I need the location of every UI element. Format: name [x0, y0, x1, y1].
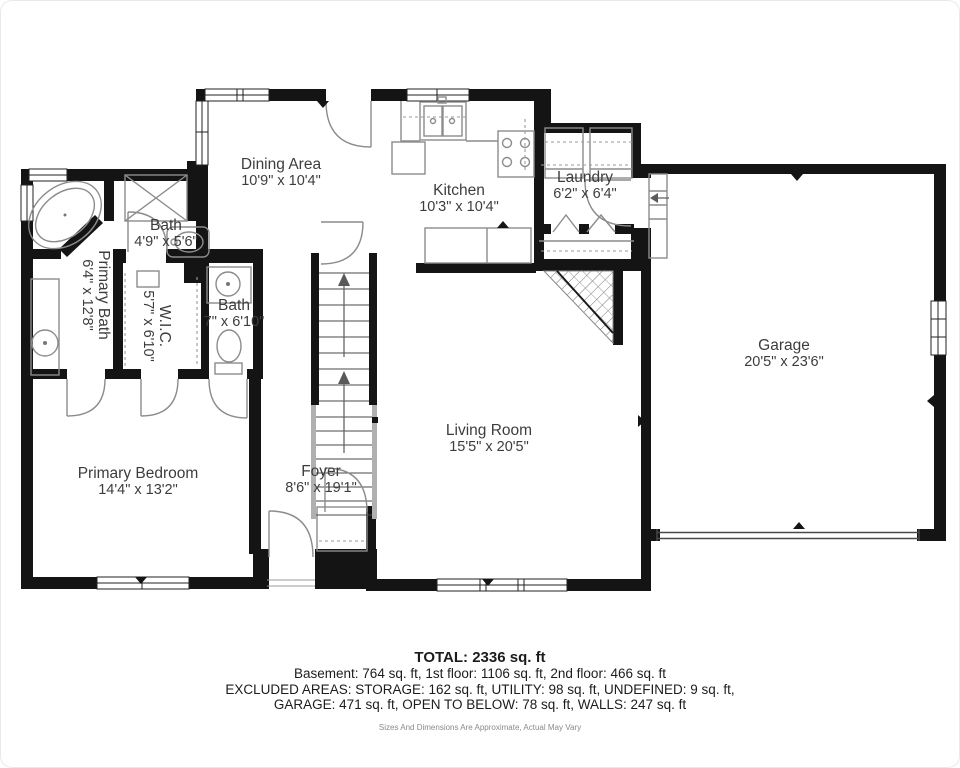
foyer-closet — [317, 507, 367, 551]
window — [29, 169, 67, 181]
room-label-laundry: Laundry 6'2" x 6'4" — [553, 169, 616, 203]
room-label-garage: Garage 20'5" x 23'6" — [744, 337, 824, 371]
garage-steps — [649, 174, 669, 258]
front-door — [269, 511, 313, 557]
window — [196, 101, 208, 165]
open-to-below-hatch — [544, 271, 613, 343]
total-area-text: TOTAL: 2336 sq. ft — [1, 649, 959, 666]
door — [67, 379, 105, 416]
floor-areas-text: Basement: 764 sq. ft, 1st floor: 1106 sq… — [1, 666, 959, 682]
room-label-dining-area: Dining Area 10'9" x 10'4" — [241, 156, 321, 190]
window — [21, 185, 33, 221]
area-summary: TOTAL: 2336 sq. ft Basement: 764 sq. ft,… — [1, 649, 959, 733]
room-label-kitchen: Kitchen 10'3" x 10'4" — [419, 182, 499, 216]
kitchen-counter — [425, 228, 531, 263]
floorplan-page: Dining Area 10'9" x 10'4" Kitchen 10'3" … — [0, 0, 960, 768]
excluded-areas-text-2: GARAGE: 471 sq. ft, OPEN TO BELOW: 78 sq… — [1, 697, 959, 713]
stove — [498, 131, 534, 177]
excluded-areas-text: EXCLUDED AREAS: STORAGE: 162 sq. ft, UTI… — [1, 682, 959, 698]
toilet — [215, 330, 242, 374]
disclaimer-text: Sizes And Dimensions Are Approximate, Ac… — [1, 723, 959, 733]
room-label-bath-2: Bath 7" x 6'10" — [204, 297, 265, 331]
bifold-door — [553, 215, 579, 232]
room-label-foyer: Foyer 8'6" x 19'1" — [285, 463, 356, 497]
kitchen-sink — [420, 97, 466, 140]
room-label-bath: Bath 4'9" x 5'6" — [134, 217, 197, 251]
door — [141, 379, 178, 416]
window — [205, 89, 269, 101]
vanity-counter — [31, 279, 59, 375]
door — [321, 222, 363, 264]
window — [931, 301, 946, 355]
door — [326, 101, 371, 147]
door — [209, 379, 247, 418]
window — [437, 579, 567, 591]
room-label-primary-bath: Primary Bath 6'4" x 12'8" — [78, 250, 112, 340]
garage-door — [657, 529, 919, 541]
room-label-living-room: Living Room 15'5" x 20'5" — [446, 422, 532, 456]
room-label-primary-bedroom: Primary Bedroom 14'4" x 13'2" — [78, 465, 199, 499]
kitchen-island — [392, 142, 425, 174]
room-label-wic: W.I.C. 5'7" x 6'10" — [139, 290, 173, 361]
shower — [125, 175, 187, 221]
closet-shelf — [137, 271, 159, 287]
